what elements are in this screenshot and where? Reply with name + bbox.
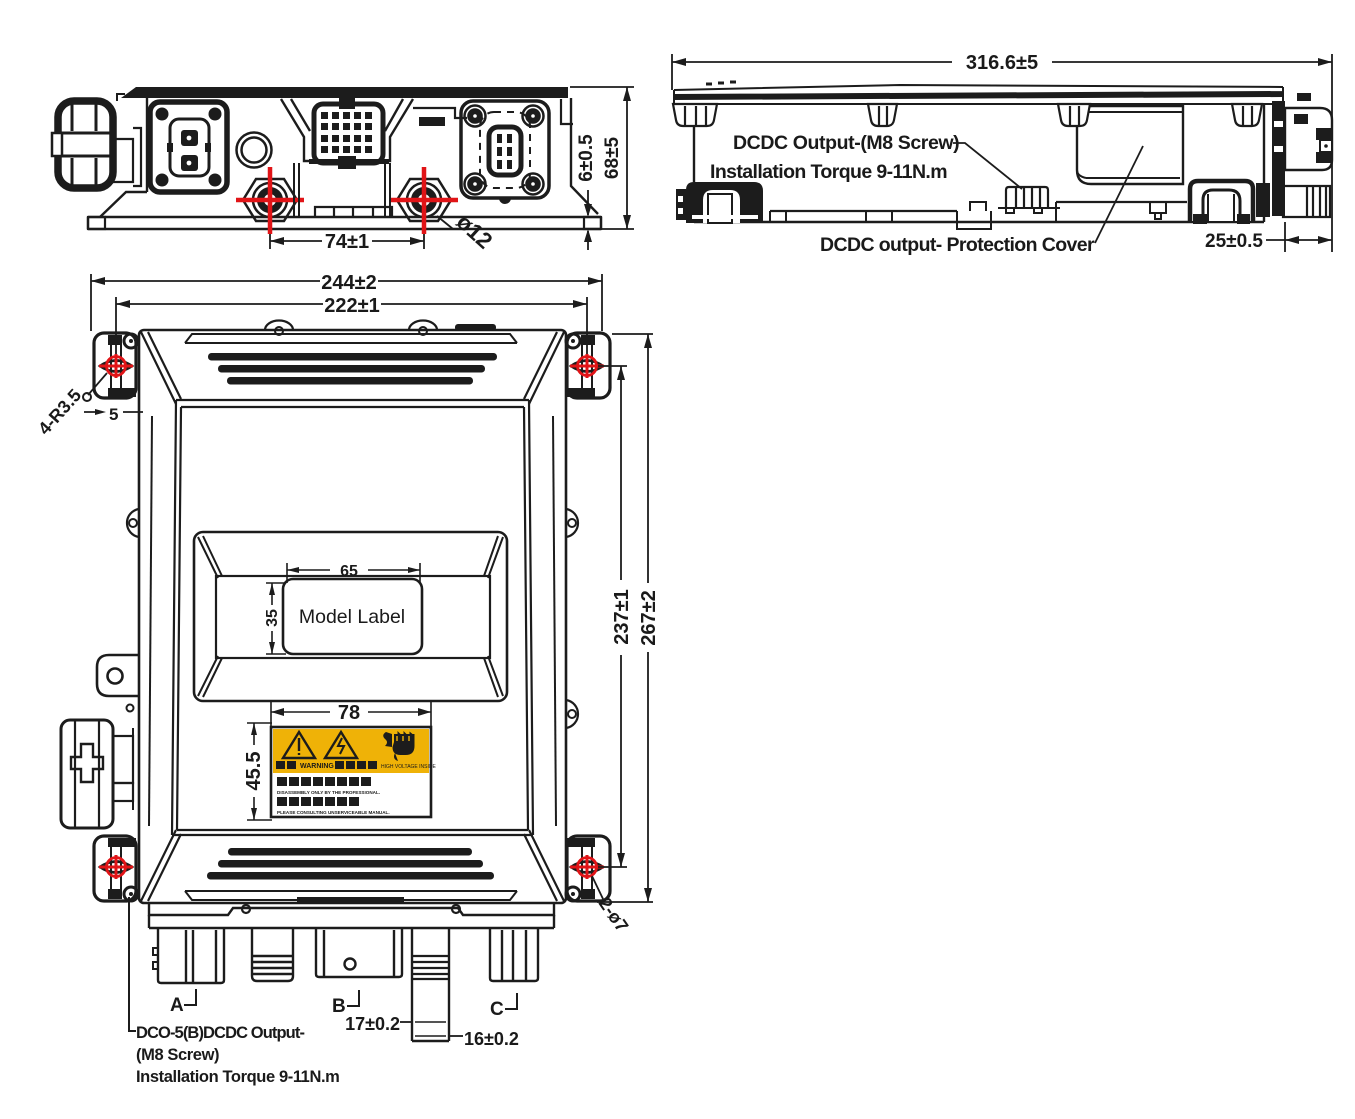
svg-text:WARNING: WARNING xyxy=(300,763,334,770)
svg-text:45.5: 45.5 xyxy=(243,752,265,791)
svg-text:(M8 Screw): (M8 Screw) xyxy=(136,1046,219,1064)
svg-text:DISASSEMBLY ONLY BY THE PROFES: DISASSEMBLY ONLY BY THE PROFESSIONAL. xyxy=(277,790,380,795)
svg-text:HIGH VOLTAGE INSIDE: HIGH VOLTAGE INSIDE xyxy=(381,764,436,770)
svg-text:Installation Torque 9-11N.m: Installation Torque 9-11N.m xyxy=(136,1068,339,1086)
svg-text:237±1: 237±1 xyxy=(611,589,633,644)
svg-text:C: C xyxy=(490,999,504,1020)
svg-text:16±0.2: 16±0.2 xyxy=(464,1029,519,1049)
svg-text:78: 78 xyxy=(338,702,360,724)
svg-text:B: B xyxy=(332,996,346,1017)
svg-text:74±1: 74±1 xyxy=(325,231,369,253)
svg-text:222±1: 222±1 xyxy=(324,295,379,317)
svg-text:65: 65 xyxy=(340,563,358,580)
svg-text:6±0.5: 6±0.5 xyxy=(576,134,597,182)
svg-text:DCO-5(B)DCDC Output-: DCO-5(B)DCDC Output- xyxy=(136,1024,304,1042)
svg-text:Model Label: Model Label xyxy=(299,606,405,628)
svg-text:A: A xyxy=(170,995,184,1016)
svg-text:244±2: 244±2 xyxy=(321,272,376,294)
svg-text:Installation Torque 9-11N.m: Installation Torque 9-11N.m xyxy=(710,161,947,183)
svg-text:DCDC Output-(M8 Screw): DCDC Output-(M8 Screw) xyxy=(733,132,959,154)
svg-text:17±0.2: 17±0.2 xyxy=(345,1014,400,1034)
svg-text:5: 5 xyxy=(109,405,118,424)
svg-text:316.6±5: 316.6±5 xyxy=(966,52,1038,74)
svg-text:25±0.5: 25±0.5 xyxy=(1205,231,1263,252)
svg-text:267±2: 267±2 xyxy=(638,590,660,645)
svg-text:PLEASE CONSULTING UNSERVICEABL: PLEASE CONSULTING UNSERVICEABLE MANUAL. xyxy=(277,810,390,815)
svg-text:35: 35 xyxy=(264,609,281,627)
svg-text:DCDC output- Protection Cover: DCDC output- Protection Cover xyxy=(820,234,1095,256)
svg-text:68±5: 68±5 xyxy=(602,137,623,180)
